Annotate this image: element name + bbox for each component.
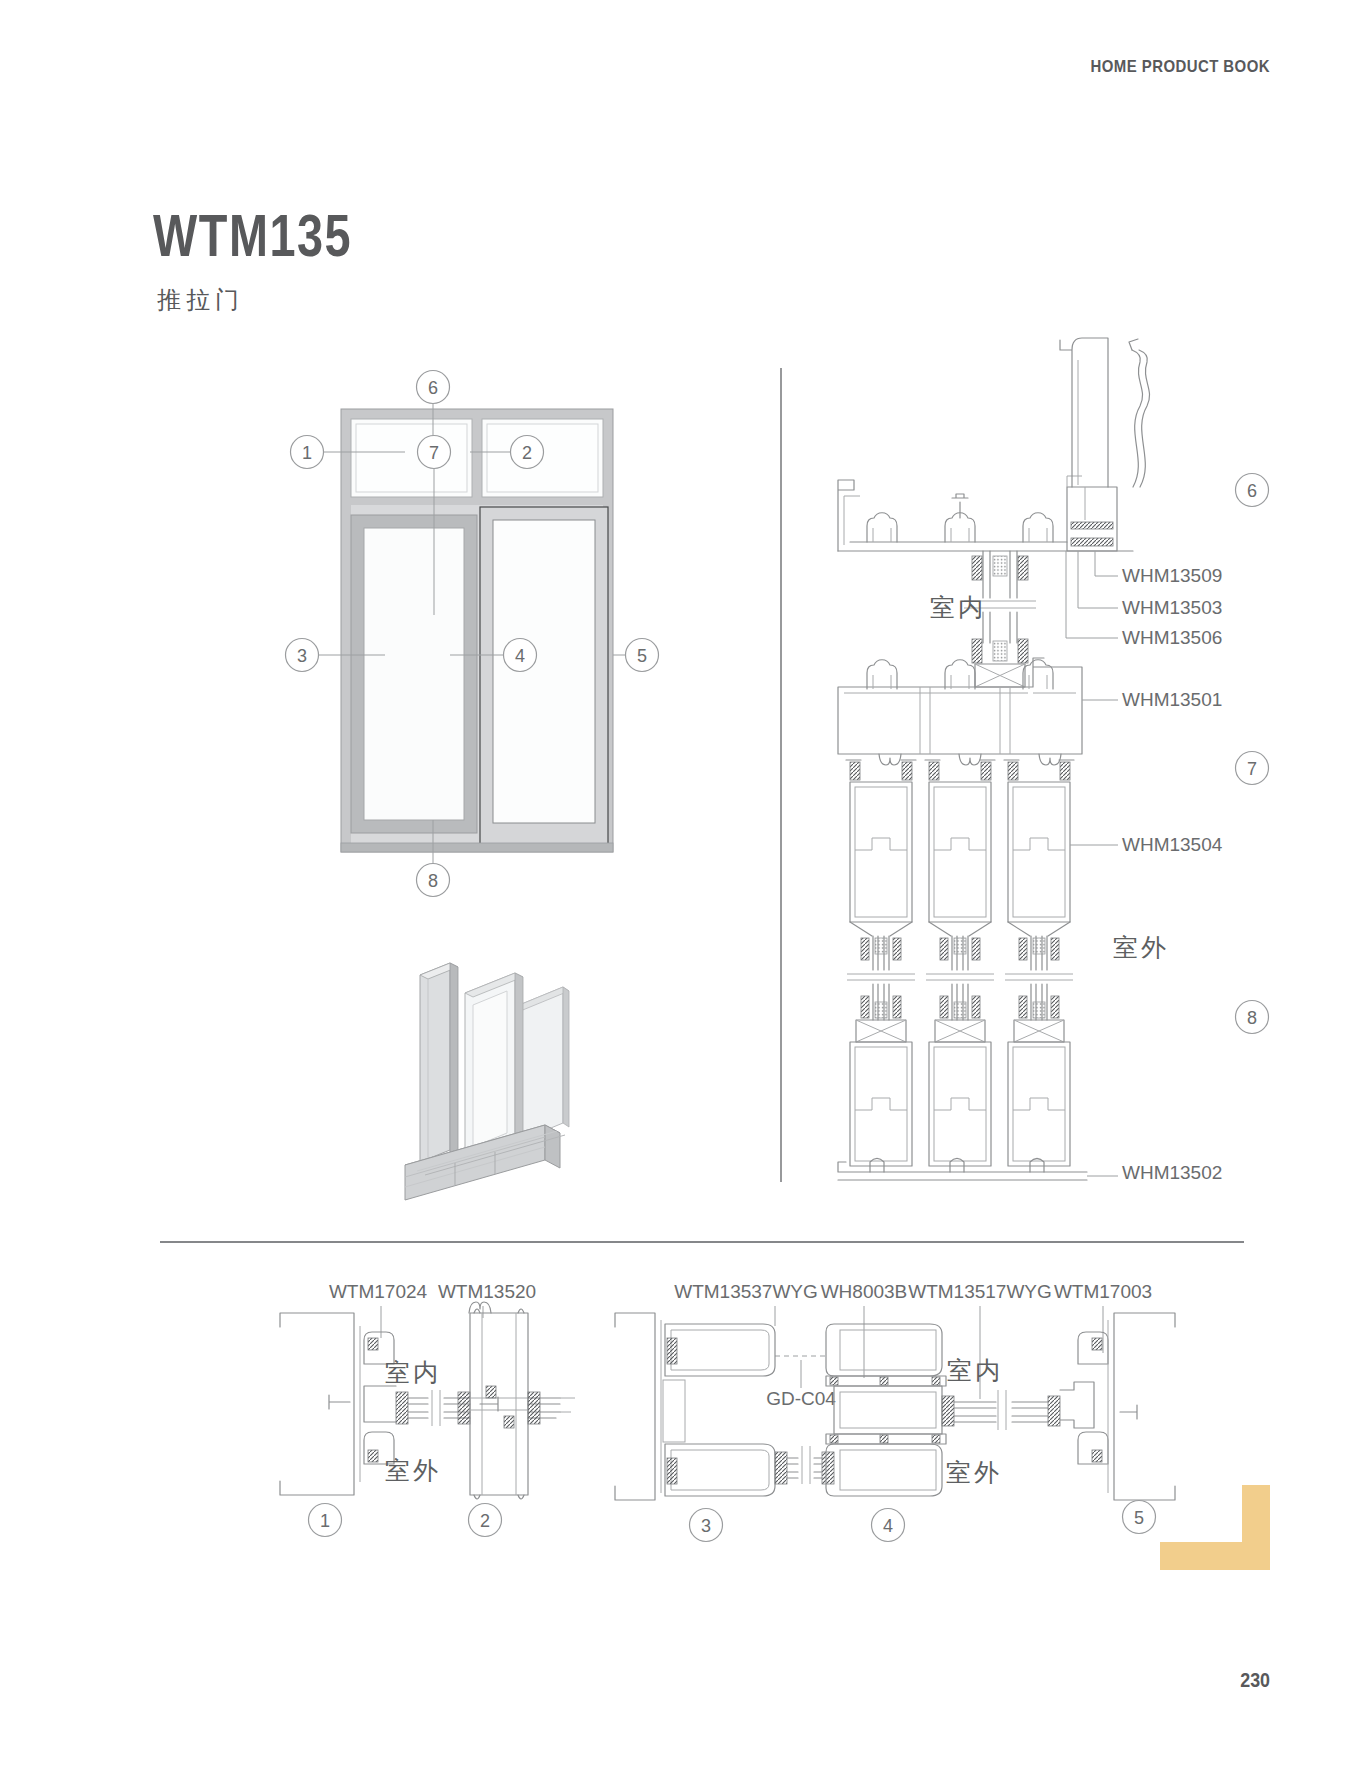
svg-text:6: 6: [428, 378, 438, 398]
svg-text:5: 5: [1134, 1508, 1144, 1528]
section1-jamb-drawing: [280, 1313, 396, 1495]
glass-unit-right: [942, 1390, 1060, 1430]
svg-text:4: 4: [515, 646, 525, 666]
glass-unit-middle: [775, 1446, 834, 1484]
hsection-callout-3: 3: [690, 1509, 723, 1542]
profile-3d-detail: [395, 915, 585, 1215]
outdoor-label: 室外: [1113, 933, 1169, 961]
elevation-callout-8: 8: [417, 864, 450, 897]
svg-text:2: 2: [522, 443, 532, 463]
svg-text:3: 3: [297, 646, 307, 666]
horizontal-sections-diagram: WTM17024 WTM13520 WTM13537WYG WH8003B WT…: [230, 1268, 1190, 1560]
part-label: WTM13537WYG: [674, 1281, 818, 1302]
hsection-leaders: [381, 1306, 1103, 1399]
glass-unit-left: [396, 1390, 470, 1426]
hsection-callout-4: 4: [872, 1509, 905, 1542]
svg-text:7: 7: [1247, 759, 1257, 779]
elevation-callout-6: 6: [417, 371, 450, 404]
door-rails-drawing: [846, 760, 1074, 1166]
elevation-callout-3: 3: [286, 639, 319, 672]
indoor-label: 室内: [930, 593, 986, 621]
indoor-label: 室内: [385, 1358, 441, 1386]
svg-text:4: 4: [883, 1516, 893, 1536]
vsection-callout-7: 7: [1236, 752, 1269, 785]
svg-text:3: 3: [701, 1516, 711, 1536]
part-label: WTM17024: [329, 1281, 428, 1302]
svg-text:1: 1: [320, 1511, 330, 1531]
indoor-label: 室内: [947, 1356, 1003, 1384]
part-label: WHM13502: [1122, 1162, 1222, 1183]
product-category: 推拉门: [157, 284, 244, 316]
svg-text:1: 1: [302, 443, 312, 463]
part-label: WH8003B: [821, 1281, 908, 1302]
door-head-band-drawing: [838, 658, 1082, 765]
page-header: HOME PRODUCT BOOK: [1090, 57, 1270, 77]
outdoor-label: 室外: [385, 1456, 441, 1484]
sill-section-drawing: [838, 1159, 1087, 1181]
hsection-callout-2: 2: [469, 1504, 502, 1537]
accessory-label: GD-C04: [766, 1388, 836, 1409]
part-label: WHM13509: [1122, 565, 1222, 586]
vsection-leaders: [1066, 551, 1118, 1176]
door-frame-graphic: [341, 409, 613, 852]
section-divider-line: [160, 1241, 1244, 1243]
part-label: WHM13501: [1122, 689, 1222, 710]
elevation-callout-7: 7: [418, 436, 451, 469]
catalog-page: HOME PRODUCT BOOK WTM135 推拉门: [0, 0, 1358, 1772]
vsection-callout-6: 6: [1236, 474, 1269, 507]
part-label: WHM13504: [1122, 834, 1223, 855]
svg-text:7: 7: [429, 443, 439, 463]
head-section-drawing: [838, 338, 1150, 551]
part-label: WHM13503: [1122, 597, 1222, 618]
page-number: 230: [1240, 1668, 1270, 1692]
svg-text:2: 2: [480, 1511, 490, 1531]
hsection-callout-1: 1: [309, 1504, 342, 1537]
section4-meeting-stile-drawing: [826, 1324, 946, 1496]
elevation-callout-5: 5: [626, 639, 659, 672]
svg-text:8: 8: [1247, 1008, 1257, 1028]
part-label: WHM13506: [1122, 627, 1222, 648]
vsection-callout-8: 8: [1236, 1001, 1269, 1034]
section5-jamb-drawing: [1060, 1313, 1175, 1500]
svg-text:6: 6: [1247, 481, 1257, 501]
door-elevation-diagram: 6 1 7 2 3 4 5 8: [230, 320, 700, 900]
corner-accent-graphic: [1242, 1485, 1270, 1570]
part-label: WTM17003: [1054, 1281, 1152, 1302]
part-label: WTM13520: [438, 1281, 536, 1302]
product-model-title: WTM135: [153, 206, 352, 266]
outdoor-label: 室外: [946, 1458, 1002, 1486]
svg-text:5: 5: [637, 646, 647, 666]
svg-text:8: 8: [428, 871, 438, 891]
hsection-callout-5: 5: [1123, 1501, 1156, 1534]
elevation-callout-1: 1: [291, 436, 324, 469]
vertical-section-diagram: WHM13509 WHM13503 WHM13506 WHM13501 WHM1…: [720, 320, 1280, 1220]
part-label: WTM13517WYG: [908, 1281, 1052, 1302]
section3-jamb-drawing: [615, 1313, 775, 1500]
elevation-callout-4: 4: [504, 639, 537, 672]
section2-interlock-drawing: [469, 1302, 575, 1499]
elevation-callout-2: 2: [511, 436, 544, 469]
